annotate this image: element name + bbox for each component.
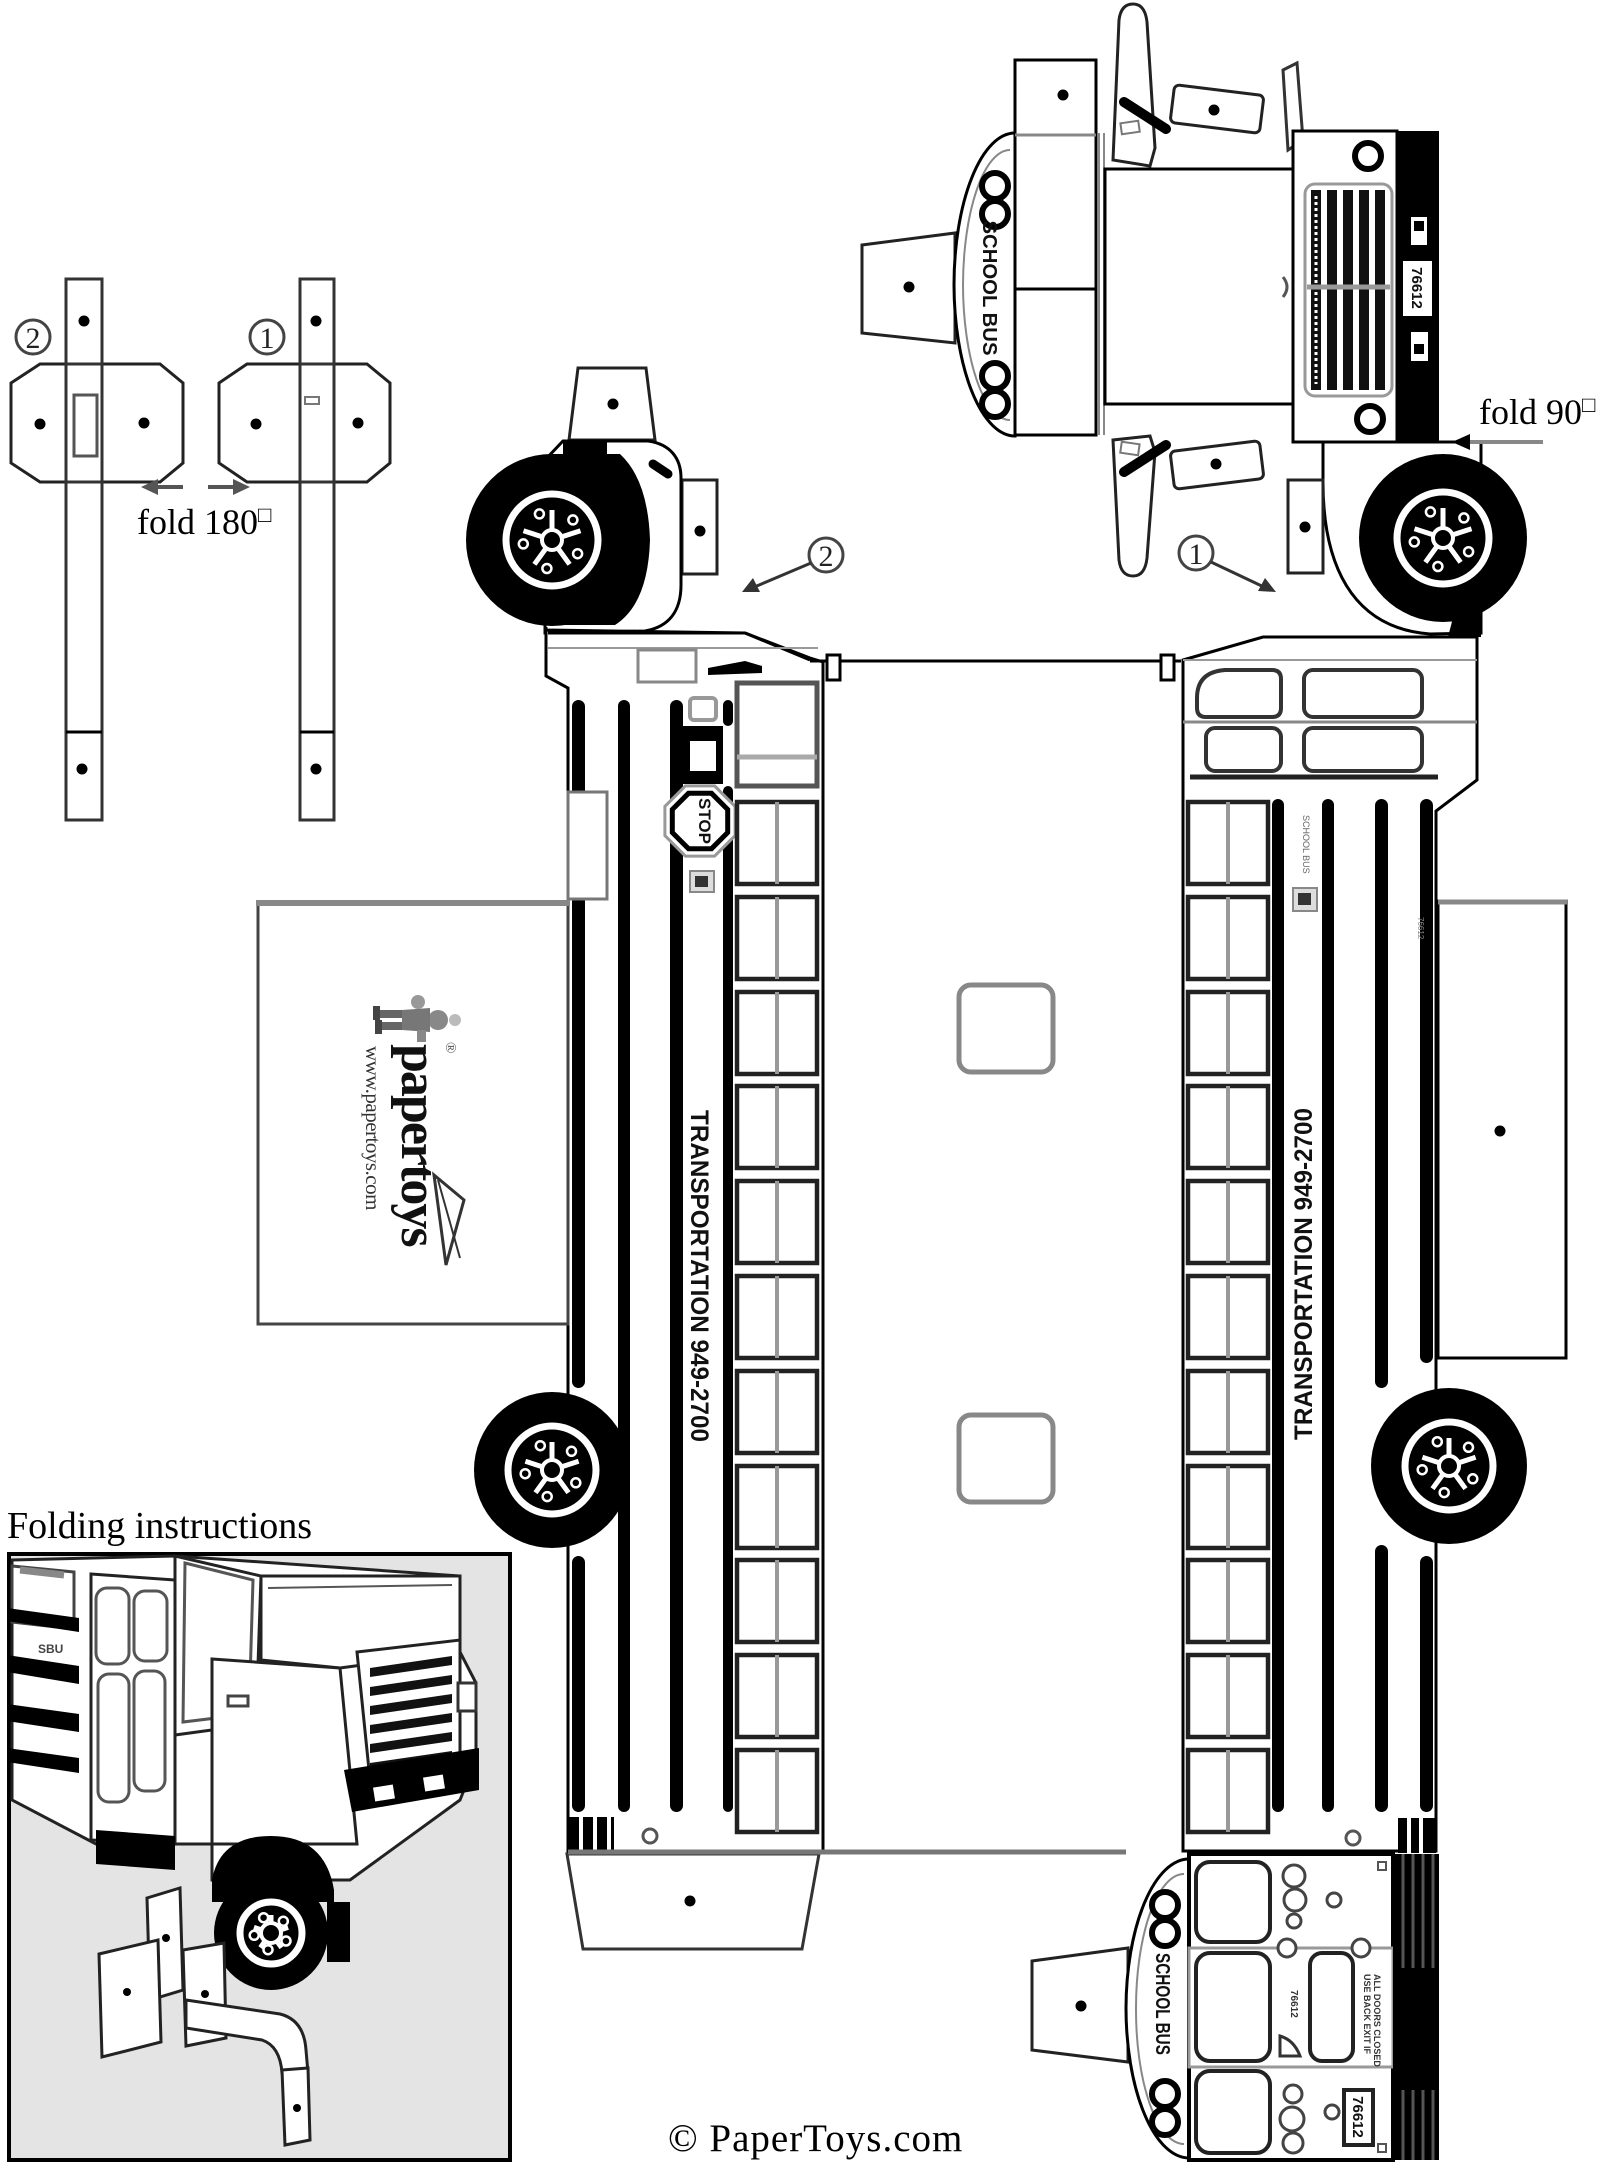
svg-text:ALL DOORS CLOSED: ALL DOORS CLOSED	[1372, 1974, 1382, 2067]
svg-text:1: 1	[260, 322, 275, 355]
svg-text:SCHOOL BUS: SCHOOL BUS	[978, 221, 1000, 356]
svg-text:2: 2	[819, 540, 834, 573]
svg-text:Folding instructions: Folding instructions	[7, 1505, 312, 1547]
svg-text:76612: 76612	[1408, 267, 1425, 309]
svg-text:TRANSPORTATION 949-2700: TRANSPORTATION 949-2700	[1290, 1108, 1318, 1440]
svg-text:© PaperToys.com: © PaperToys.com	[668, 2117, 963, 2160]
svg-text:2: 2	[26, 322, 41, 355]
svg-text:®: ®	[442, 1042, 458, 1053]
svg-text:fold 90□: fold 90□	[1479, 392, 1595, 432]
svg-text:76612: 76612	[1349, 2096, 1366, 2138]
svg-text:fold 180□: fold 180□	[137, 502, 271, 542]
svg-text:www.papertoys.com: www.papertoys.com	[361, 1046, 385, 1210]
svg-text:STOP: STOP	[695, 798, 714, 844]
svg-text:76612: 76612	[1416, 917, 1425, 940]
svg-text:1: 1	[1189, 538, 1204, 571]
svg-text:SCHOOL BUS: SCHOOL BUS	[1301, 815, 1311, 874]
svg-text:SBU: SBU	[38, 1642, 63, 1656]
svg-text:76612: 76612	[1288, 1990, 1299, 2018]
svg-text:USE BACK EXIT IF: USE BACK EXIT IF	[1362, 1974, 1372, 2055]
svg-text:SCHOOL BUS: SCHOOL BUS	[1151, 1953, 1173, 2055]
svg-text:TRANSPORTATION 949-2700: TRANSPORTATION 949-2700	[685, 1110, 713, 1442]
